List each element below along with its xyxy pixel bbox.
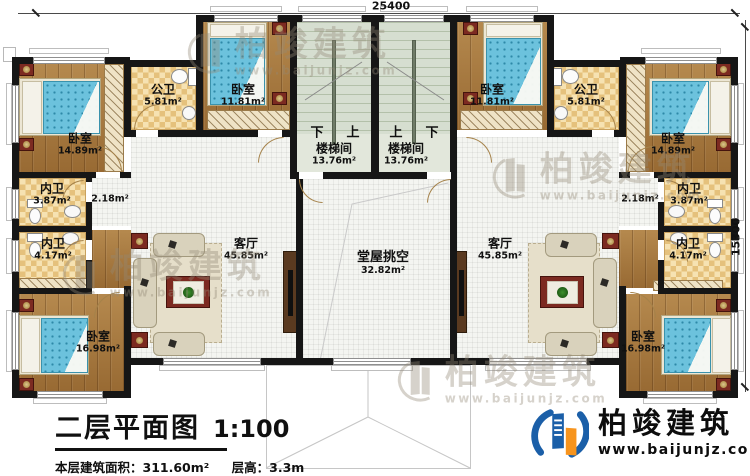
nightstand [19,378,34,391]
sink [182,106,196,120]
room-label-stairwell-left: 楼梯间13.76m² [312,143,356,168]
coffee-table [166,276,210,308]
room-label-corridor-left: 2.18m² [91,195,129,206]
brand-logo-icon [531,404,589,462]
room-label-inner-bath-right-2: 内卫4.17m² [669,238,707,263]
window [12,240,19,272]
wall-opening [468,130,492,137]
wall-segment [296,172,303,365]
window [731,189,738,219]
wall-segment [12,288,92,294]
window [214,15,278,22]
page-title: 二层平面图 [55,406,200,445]
nightstand [272,92,287,105]
window-sill [33,398,107,404]
dimension-top-value: 25400 [372,0,410,13]
nightstand [19,299,34,312]
wall-segment [196,15,203,137]
window [302,15,362,22]
brand-site: www.baijunjz.com [598,443,750,457]
dimension-right-value: 15300 [730,218,743,256]
nightstand [716,299,731,312]
window-sill [738,83,744,145]
plant [557,287,568,298]
stair-up-label-right: 上 [389,122,402,141]
stair-down-label-left: 下 [310,122,323,141]
sofa [545,233,597,257]
tv-cabinet [283,251,297,333]
window [163,358,261,365]
wall-opening [658,240,664,260]
window-sill [738,310,744,372]
room-label-bedroom-11-left: 卧室11.81m² [221,84,265,109]
window-sill [298,6,366,12]
wall-segment [12,226,92,232]
room-label-inner-bath-left-1: 内卫3.87m² [33,183,71,208]
room-label-bedroom-bottom-left: 卧室16.98m² [76,331,120,356]
room-label-corridor-right: 2.18m² [621,195,659,206]
window-sill [641,48,721,54]
wall-segment [658,288,738,294]
dimension-line-top [18,13,740,14]
wardrobe-hatch [460,110,543,130]
window [731,312,738,370]
wall-segment [658,226,738,232]
sofa [133,258,157,328]
window-sill [331,365,413,371]
bed [661,315,731,375]
end-table [602,332,619,348]
title-block: 二层平面图 1:100 本层建筑面积：311.60m² 层高：3.3m [55,406,304,476]
bed [19,78,101,136]
window-sill [210,6,282,12]
sofa [153,332,205,356]
wall-opening [427,172,451,179]
room-label-bedroom-bottom-right: 卧室16.98m² [621,331,665,356]
drawing-scale: 1:100 [213,415,289,443]
wall-opening [96,172,120,178]
nightstand [716,63,731,76]
nightstand [463,22,478,35]
wall-opening [86,240,92,260]
brand-name: 柏竣建筑 [598,409,734,438]
wall-segment [547,130,626,137]
nightstand [19,138,34,151]
plant [183,287,194,298]
stair-rail [332,40,336,144]
wall-segment [450,15,457,179]
wall-opening [258,130,282,137]
nightstand [19,63,34,76]
dimension-line-right [745,20,746,392]
stair-down-label-right: 下 [425,122,438,141]
room-label-hall-void: 堂屋挑空32.82m² [357,251,409,277]
room-label-inner-bath-left-2: 内卫4.17m² [34,238,72,263]
toilet [706,199,724,226]
window-sill [159,365,265,371]
wall-segment [658,172,738,178]
sink [554,106,568,120]
wall-segment [12,172,92,178]
window-sill [738,187,744,221]
stair-rail [412,40,416,144]
window [384,15,444,22]
end-table [131,332,148,348]
room-label-inner-bath-right-1: 内卫3.87m² [670,183,708,208]
room-label-stairwell-right: 楼梯间13.76m² [384,143,428,168]
window [489,358,587,365]
wall-segment [124,286,131,398]
room-label-bedroom-11-right: 卧室11.81m² [470,84,514,109]
window [645,57,717,64]
window [333,358,411,365]
window [12,189,19,219]
wall-segment [124,60,131,137]
window-sill [29,48,109,54]
end-table [602,233,619,249]
nightstand [716,378,731,391]
window [33,57,105,64]
window [37,391,103,398]
wall-segment [371,15,379,179]
window [12,312,19,370]
brand-logo: 柏竣建筑 www.baijunjz.com [531,404,750,462]
wall-opening [658,182,664,202]
sofa [593,258,617,328]
wall-segment [124,60,203,67]
wall-opening [592,130,614,137]
window [647,391,713,398]
title-sub-info: 本层建筑面积：311.60m² 层高：3.3m [55,457,304,476]
bed [649,78,731,136]
wall-opening [630,172,654,178]
window [470,15,534,22]
room-label-bedroom-top-right: 卧室14.89m² [651,133,695,158]
window [731,85,738,143]
window-sill [485,365,591,371]
wall-segment [619,60,626,137]
room-label-public-bath-left: 公卫5.81m² [144,84,182,109]
floor-plan-canvas: 卧室14.89m² 公卫5.81m² 卧室11.81m² 楼梯间13.76m² … [0,0,750,476]
wall-segment [547,15,554,137]
wall-opening [136,130,158,137]
room-label-bedroom-top-left: 卧室14.89m² [58,133,102,158]
wall-segment [290,15,297,179]
end-table [131,233,148,249]
nightstand [716,138,731,151]
wardrobe-hatch [207,110,290,130]
window-sill [466,6,538,12]
wall-segment [547,60,626,67]
wall-segment [450,172,457,365]
stair-up-label-left: 上 [346,122,359,141]
sofa [545,332,597,356]
wall-opening [299,172,323,179]
toilet [706,233,724,260]
sofa [153,233,205,257]
room-label-public-bath-right: 公卫5.81m² [567,84,605,109]
corridor-wood-left [92,230,131,288]
room-label-living-right: 客厅45.85m² [478,238,522,263]
window [12,85,19,143]
title-underline [55,448,227,451]
nightstand [272,22,287,35]
coffee-table [540,276,584,308]
room-label-living-left: 客厅45.85m² [224,238,268,263]
